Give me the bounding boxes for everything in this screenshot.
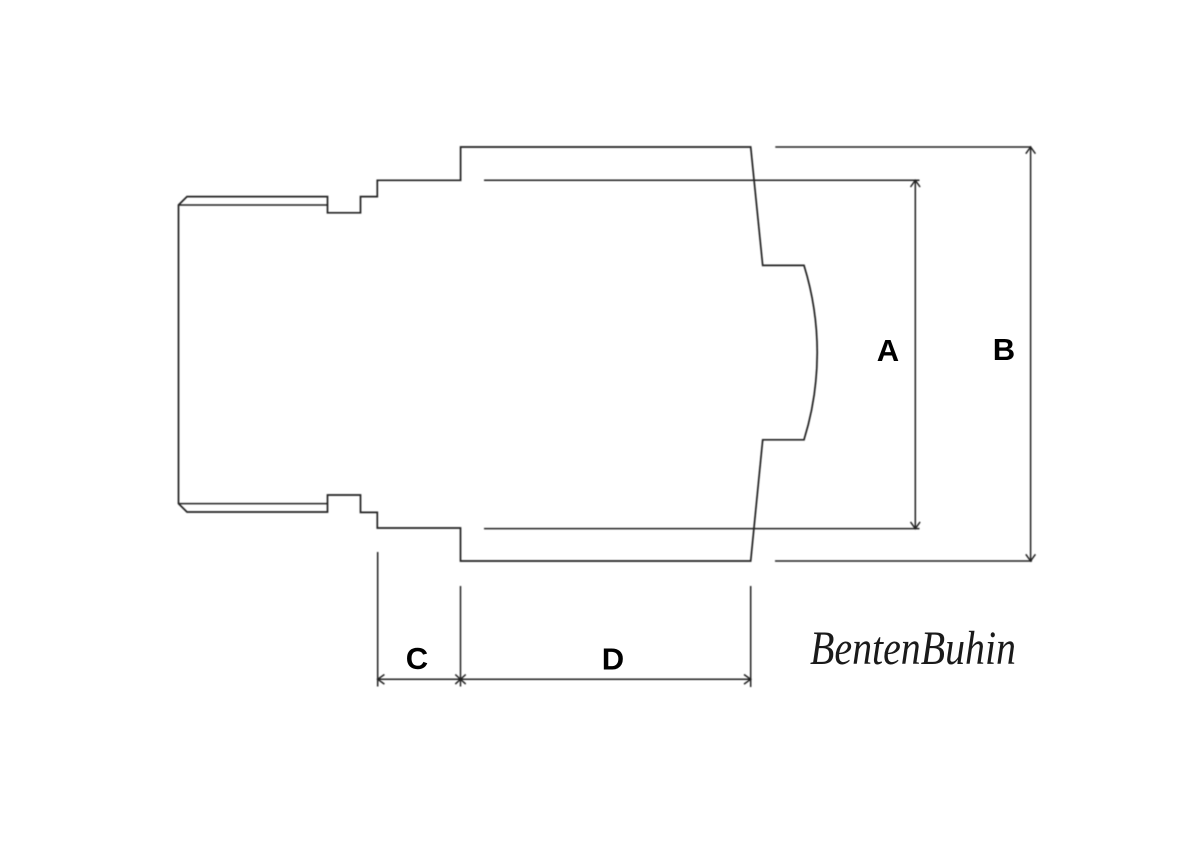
svg-text:B: B	[993, 332, 1015, 367]
svg-text:C: C	[406, 641, 428, 676]
svg-text:BentenBuhin: BentenBuhin	[810, 622, 1016, 675]
svg-text:D: D	[602, 642, 624, 677]
svg-text:A: A	[877, 333, 899, 368]
